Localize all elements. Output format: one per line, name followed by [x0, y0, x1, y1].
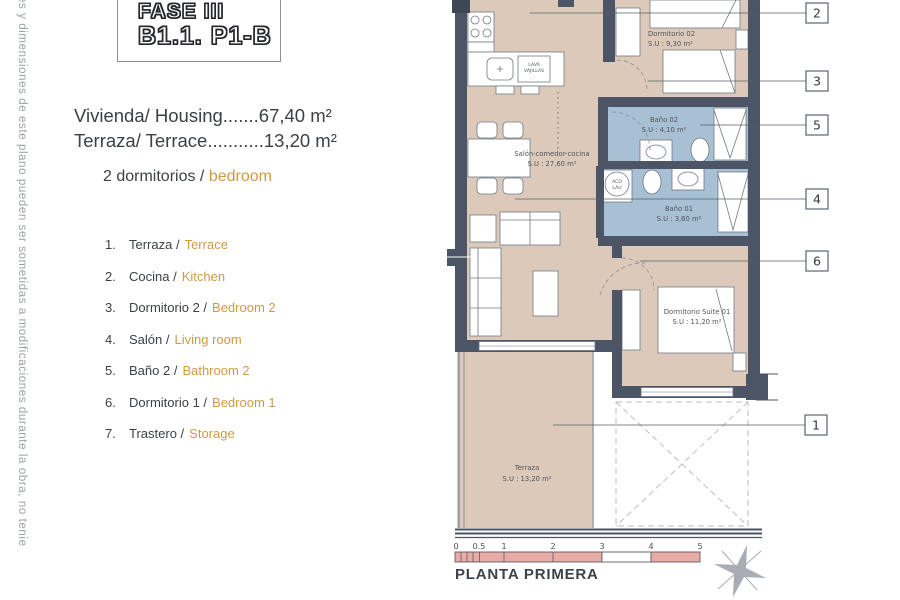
terrace-leader-dots: ........... [207, 130, 264, 151]
terrace-label: Terraza [514, 464, 540, 472]
toilet-icon [691, 138, 709, 162]
legend-num: 3. [105, 300, 129, 315]
terrace-area: S.U : 13,20 m² [502, 475, 551, 483]
callout-2: 2 [813, 6, 821, 21]
plan-title: PLANTA PRIMERA [455, 566, 599, 583]
legend-item-bano2: 5. Baño 2 / Bathroom 2 [105, 363, 276, 378]
legend-item-salon: 4. Salón / Living room [105, 332, 276, 347]
washer-label-1: ACO [612, 179, 622, 185]
housing-leader-dots: ....... [223, 105, 259, 126]
sofa-long-icon [470, 248, 501, 336]
dishwasher-label-2: VAJILLAS [524, 68, 544, 74]
callout-5: 5 [813, 118, 821, 133]
housing-label: Vivienda/ Housing [74, 105, 223, 126]
scale-tick: 2 [550, 542, 555, 551]
legend-num: 4. [105, 332, 129, 347]
stool-icon [521, 86, 539, 94]
dining-table [468, 139, 530, 177]
salon-label: Salón-comedor-cocina [514, 150, 589, 158]
scale-tick: 0 [453, 542, 458, 551]
bed-foot [663, 50, 735, 93]
area-summary: Vivienda/ Housing.......67,40 m² Terraza… [74, 103, 337, 153]
legend-item-trastero: 7. Trastero / Storage [105, 426, 276, 441]
coffee-table [533, 271, 558, 316]
legend-item-terraza: 1. Terraza / Terrace [105, 237, 276, 252]
legend-en: Storage [189, 426, 235, 441]
legend-num: 2. [105, 269, 129, 284]
stove-icon [468, 12, 494, 42]
compass-icon [714, 545, 766, 597]
legend-es: Salón / [129, 332, 169, 347]
logo-unit-line: B1.1. P1-B [138, 23, 280, 49]
scale-tick: 0.5 [473, 542, 486, 551]
nightstand-icon [736, 30, 748, 49]
callout-6: 6 [813, 254, 821, 269]
legend-es: Cocina / [129, 269, 177, 284]
chair-icon [503, 122, 523, 138]
floor-plan-page: es y dimensiones de este plano pueden se… [0, 0, 900, 600]
legend-en: Kitchen [182, 269, 225, 284]
sink-icon [640, 140, 672, 164]
bedroom2-area: S.U : 9,30 m² [648, 40, 693, 48]
wardrobe-icon [718, 172, 748, 232]
scale-tick: 3 [599, 542, 604, 551]
stool-icon [496, 86, 514, 94]
scale-bar: 0 0.5 1 2 3 4 5 [453, 542, 702, 562]
bedroom2-label: Dormitorio 02 [648, 30, 695, 38]
side-disclaimer-text: es y dimensiones de este plano pueden se… [16, 0, 28, 600]
legend-num: 7. [105, 426, 129, 441]
bath1-label: Baño 01 [665, 205, 693, 213]
sink-icon [672, 168, 704, 190]
housing-value: 67,40 m² [259, 105, 332, 126]
wardrobe-icon [714, 108, 746, 160]
nightstand-icon [733, 353, 746, 371]
legend-en: Bedroom 2 [212, 300, 276, 315]
legend-item-dormitorio2: 3. Dormitorio 2 / Bedroom 2 [105, 300, 276, 315]
legend-es: Dormitorio 2 / [129, 300, 207, 315]
desk-icon [622, 290, 640, 350]
callout-1: 1 [812, 418, 820, 433]
legend-en: Bedroom 1 [212, 395, 276, 410]
legend-es: Baño 2 / [129, 363, 177, 378]
housing-area-row: Vivienda/ Housing.......67,40 m² [74, 103, 337, 128]
floor-plan-drawing: LAVA VAJILLAS [430, 0, 900, 600]
bath2-area: S.U : 4,10 m² [642, 126, 687, 134]
legend-es: Trastero / [129, 426, 184, 441]
washer-label-2: LAU [612, 185, 621, 191]
chair-icon [503, 178, 523, 194]
phase-logo: FASE III B1.1. P1-B [117, 0, 281, 62]
legend-item-cocina: 2. Cocina / Kitchen [105, 269, 276, 284]
terrace-value: 13,20 m² [264, 130, 337, 151]
chair-icon [477, 122, 497, 138]
bedroom-count-en: bedroom [209, 168, 272, 185]
callout-3: 3 [813, 74, 821, 89]
suite-area: S.U : 11,20 m² [672, 318, 721, 326]
legend-en: Bathroom 2 [182, 363, 249, 378]
room-legend: 1. Terraza / Terrace 2. Cocina / Kitchen… [105, 237, 276, 458]
suite-label: Dormitorio Suite 01 [664, 308, 731, 316]
bedroom-count-es: 2 dormitorios / [103, 168, 209, 185]
legend-es: Terraza / [129, 237, 180, 252]
legend-en: Living room [174, 332, 241, 347]
legend-num: 1. [105, 237, 129, 252]
callout-4: 4 [813, 192, 821, 207]
bath2-label: Baño 02 [650, 116, 678, 124]
scale-tick: 5 [697, 542, 702, 551]
wardrobe-icon [616, 8, 640, 56]
armchair-icon [470, 215, 496, 242]
legend-num: 5. [105, 363, 129, 378]
legend-en: Terrace [185, 237, 228, 252]
bed-icon [650, 0, 740, 28]
legend-item-dormitorio1: 6. Dormitorio 1 / Bedroom 1 [105, 395, 276, 410]
kitchen-counter [468, 42, 494, 52]
scale-tick: 1 [501, 542, 506, 551]
legend-es: Dormitorio 1 / [129, 395, 207, 410]
scale-tick: 4 [648, 542, 653, 551]
terrace-area-row: Terraza/ Terrace...........13,20 m² [74, 128, 337, 153]
toilet-icon [643, 170, 661, 194]
legend-num: 6. [105, 395, 129, 410]
terrace-label: Terraza/ Terrace [74, 130, 207, 151]
logo-phase-line: FASE III [138, 1, 280, 23]
salon-area: S.U : 27,60 m² [527, 160, 576, 168]
bedroom-count: 2 dormitorios / bedroom [103, 168, 272, 186]
bath1-area: S.U : 3,60 m² [657, 215, 702, 223]
dishwasher-label-1: LAVA [528, 62, 540, 68]
chair-icon [477, 178, 497, 194]
neighbor-terrace-outline [616, 402, 748, 526]
